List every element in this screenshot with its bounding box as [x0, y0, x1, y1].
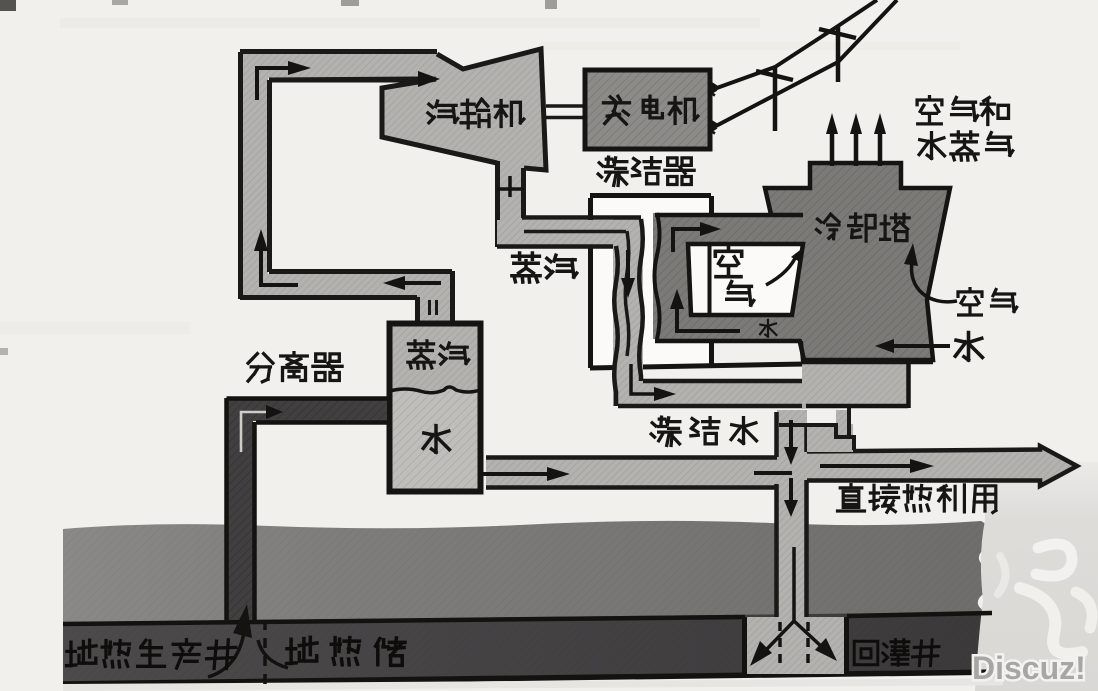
svg-text:Discuz!: Discuz! — [972, 650, 1086, 686]
